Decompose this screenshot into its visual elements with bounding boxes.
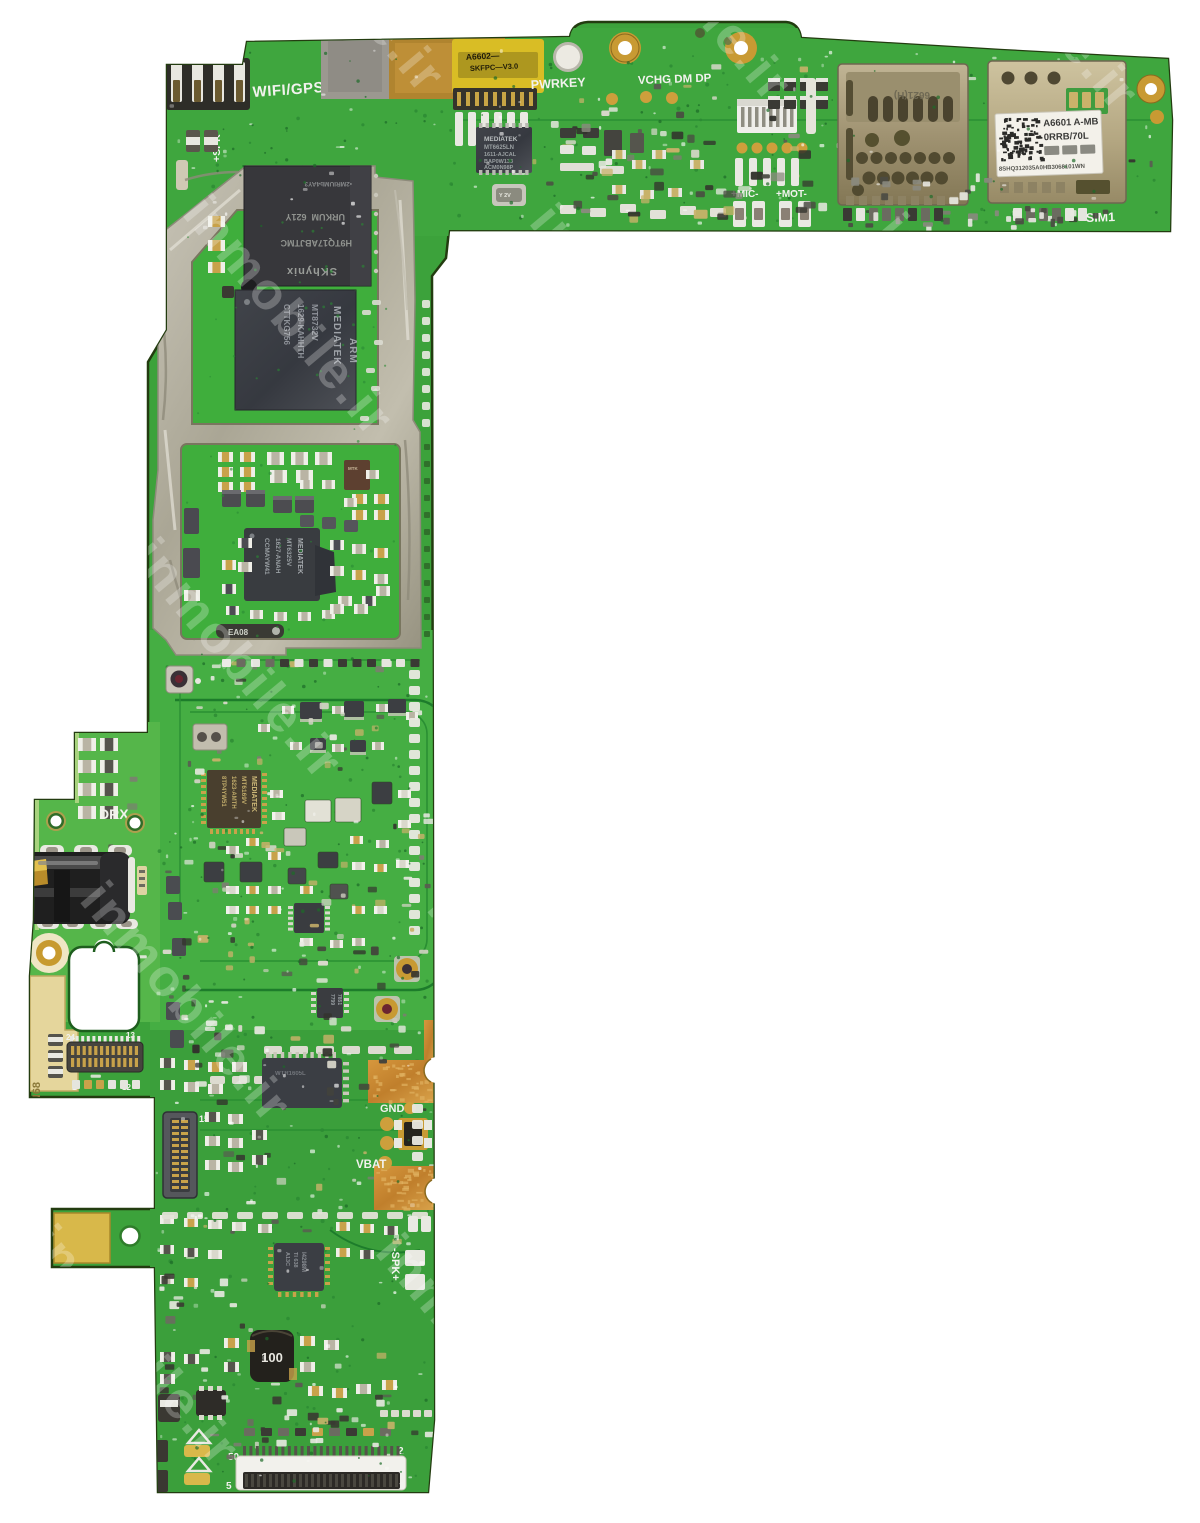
svg-text:•2MRIUMb4AY3: •2MRIUMb4AY3 <box>304 180 352 187</box>
svg-text:MEDIATEK: MEDIATEK <box>296 538 303 574</box>
svg-text:1623-AMTH: 1623-AMTH <box>230 776 236 809</box>
svg-text:7851: 7851 <box>336 994 342 1005</box>
svg-text:5: 5 <box>226 1481 232 1492</box>
svg-text:MEDIATEK: MEDIATEK <box>250 776 257 812</box>
svg-text:1627-ANAH: 1627-ANAH <box>274 538 281 574</box>
svg-text:7799: 7799 <box>329 994 335 1005</box>
svg-text:A13C: A13C <box>284 1252 290 1266</box>
svg-text:URKUM 621Y: URKUM 621Y <box>285 212 345 222</box>
svg-text:MTK: MTK <box>348 466 358 471</box>
svg-text:GND: GND <box>380 1103 405 1115</box>
svg-text:8TP4YW51: 8TP4YW51 <box>220 776 226 807</box>
svg-text:ACM0N98P: ACM0N98P <box>484 165 514 171</box>
svg-text:6621(H): 6621(H) <box>894 89 930 100</box>
svg-text:0RRB/70L: 0RRB/70L <box>1044 131 1089 144</box>
svg-text:A6601 A-MB: A6601 A-MB <box>1043 116 1099 129</box>
svg-text:TI 638: TI 638 <box>292 1252 298 1268</box>
svg-text:1: 1 <box>399 1481 405 1492</box>
svg-text:MT6625LN: MT6625LN <box>484 145 514 151</box>
svg-text:DRX: DRX <box>99 806 129 822</box>
svg-text:H9TQ17ABJTMC: H9TQ17ABJTMC <box>280 238 352 248</box>
svg-text:I4298M: I4298M <box>300 1252 306 1272</box>
svg-text:1611-AJCAL: 1611-AJCAL <box>484 152 517 158</box>
svg-text:MT6169V: MT6169V <box>240 776 247 805</box>
svg-text:A6602—: A6602— <box>466 50 501 62</box>
svg-text:MEDIATEK: MEDIATEK <box>484 136 518 143</box>
svg-text:Y 2V: Y 2V <box>499 193 511 199</box>
svg-text:CCMAYW41: CCMAYW41 <box>263 538 270 575</box>
svg-text:PWRKEY: PWRKEY <box>530 75 586 92</box>
svg-text:MT6325V: MT6325V <box>285 538 292 567</box>
svg-text:VBAT: VBAT <box>356 1159 386 1171</box>
svg-text:SIM1: SIM1 <box>1086 210 1116 225</box>
svg-text:SKhynix: SKhynix <box>286 265 337 277</box>
